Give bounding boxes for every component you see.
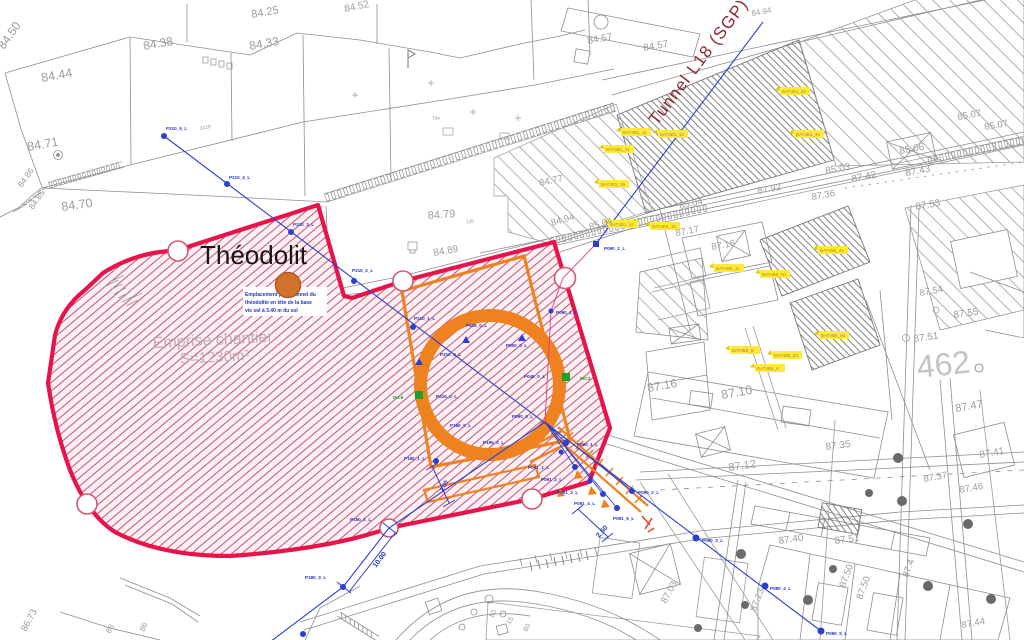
svg-text:BAT4B1_14: BAT4B1_14 (610, 222, 634, 227)
svg-text:P180_2_L: P180_2_L (350, 517, 371, 522)
svg-text:BAT4B1_31: BAT4B1_31 (606, 147, 630, 152)
svg-text:P515_0_L: P515_0_L (466, 323, 487, 328)
svg-text:BAT4B1_18: BAT4B1_18 (652, 224, 676, 229)
svg-text:84.79: 84.79 (427, 208, 455, 222)
svg-text:P090_1_L: P090_1_L (556, 310, 577, 315)
svg-text:P090_1_L: P090_1_L (577, 442, 598, 447)
svg-text:P090_0_L: P090_0_L (512, 414, 533, 419)
svg-text:462: 462 (915, 344, 972, 385)
svg-text:P210_4_L: P210_4_L (229, 175, 250, 180)
svg-text:74n: 74n (432, 116, 441, 122)
svg-text:P500_0_L: P500_0_L (506, 343, 527, 348)
svg-text:Théodolit: Théodolit (200, 240, 308, 270)
svg-text:P090_2_L: P090_2_L (638, 490, 659, 495)
svg-text:INC3: INC3 (580, 376, 591, 381)
svg-text:BAT45B_H1: BAT45B_H1 (821, 333, 846, 338)
svg-text:BAT45B_H: BAT45B_H (757, 366, 779, 371)
svg-text:BAT45B_H1: BAT45B_H1 (762, 272, 787, 277)
svg-text:P091_2_L: P091_2_L (541, 477, 562, 482)
svg-text:BAT4B1_13: BAT4B1_13 (660, 132, 684, 137)
svg-text:P180_1_L: P180_1_L (404, 456, 425, 461)
svg-text:P045_0_L: P045_0_L (524, 374, 545, 379)
svg-text:P091_3_L: P091_3_L (557, 490, 578, 495)
svg-text:BAT4B1_19: BAT4B1_19 (601, 182, 625, 187)
svg-text:BAT4B1_20: BAT4B1_20 (782, 89, 806, 94)
svg-text:P210_0_L: P210_0_L (440, 352, 461, 357)
svg-text:BAT45B_11: BAT45B_11 (716, 266, 740, 271)
svg-text:BAT45B_21: BAT45B_21 (820, 248, 844, 253)
svg-text:INC8: INC8 (393, 395, 404, 400)
svg-text:P090_4_L: P090_4_L (770, 586, 791, 591)
svg-text:P180_0_L: P180_0_L (450, 423, 471, 428)
svg-text:BAT45B_B1: BAT45B_B1 (774, 353, 799, 358)
svg-text:P091_5_L: P091_5_L (613, 516, 634, 521)
svg-text:P210_2_L: P210_2_L (352, 268, 373, 273)
svg-text:P091_4_L: P091_4_L (574, 501, 595, 506)
svg-text:P210_5_L: P210_5_L (166, 126, 187, 131)
svg-text:P090_2_L: P090_2_L (604, 246, 625, 251)
svg-text:P090_5_L: P090_5_L (826, 631, 847, 636)
svg-text:BAT4B1_46: BAT4B1_46 (796, 132, 820, 137)
svg-text:BAT45B_B: BAT45B_B (732, 348, 754, 353)
svg-text:théodolite en tête de la base: théodolite en tête de la base (245, 300, 312, 306)
svg-text:BAT4B1_11: BAT4B1_11 (623, 130, 647, 135)
svg-text:vis sol à 3.40 m du sol: vis sol à 3.40 m du sol (245, 308, 298, 314)
svg-text:P210_1_L: P210_1_L (414, 316, 435, 321)
svg-text:P090_3_L: P090_3_L (702, 538, 723, 543)
svg-text:P195_0_L: P195_0_L (483, 440, 504, 445)
svg-text:P225_0_L: P225_0_L (436, 394, 457, 399)
svg-text:P210_3_L: P210_3_L (293, 222, 314, 227)
svg-text:S=1230m²: S=1230m² (179, 347, 249, 368)
svg-text:P180_3_L: P180_3_L (305, 575, 326, 580)
svg-text:P091_1_L: P091_1_L (528, 465, 549, 470)
